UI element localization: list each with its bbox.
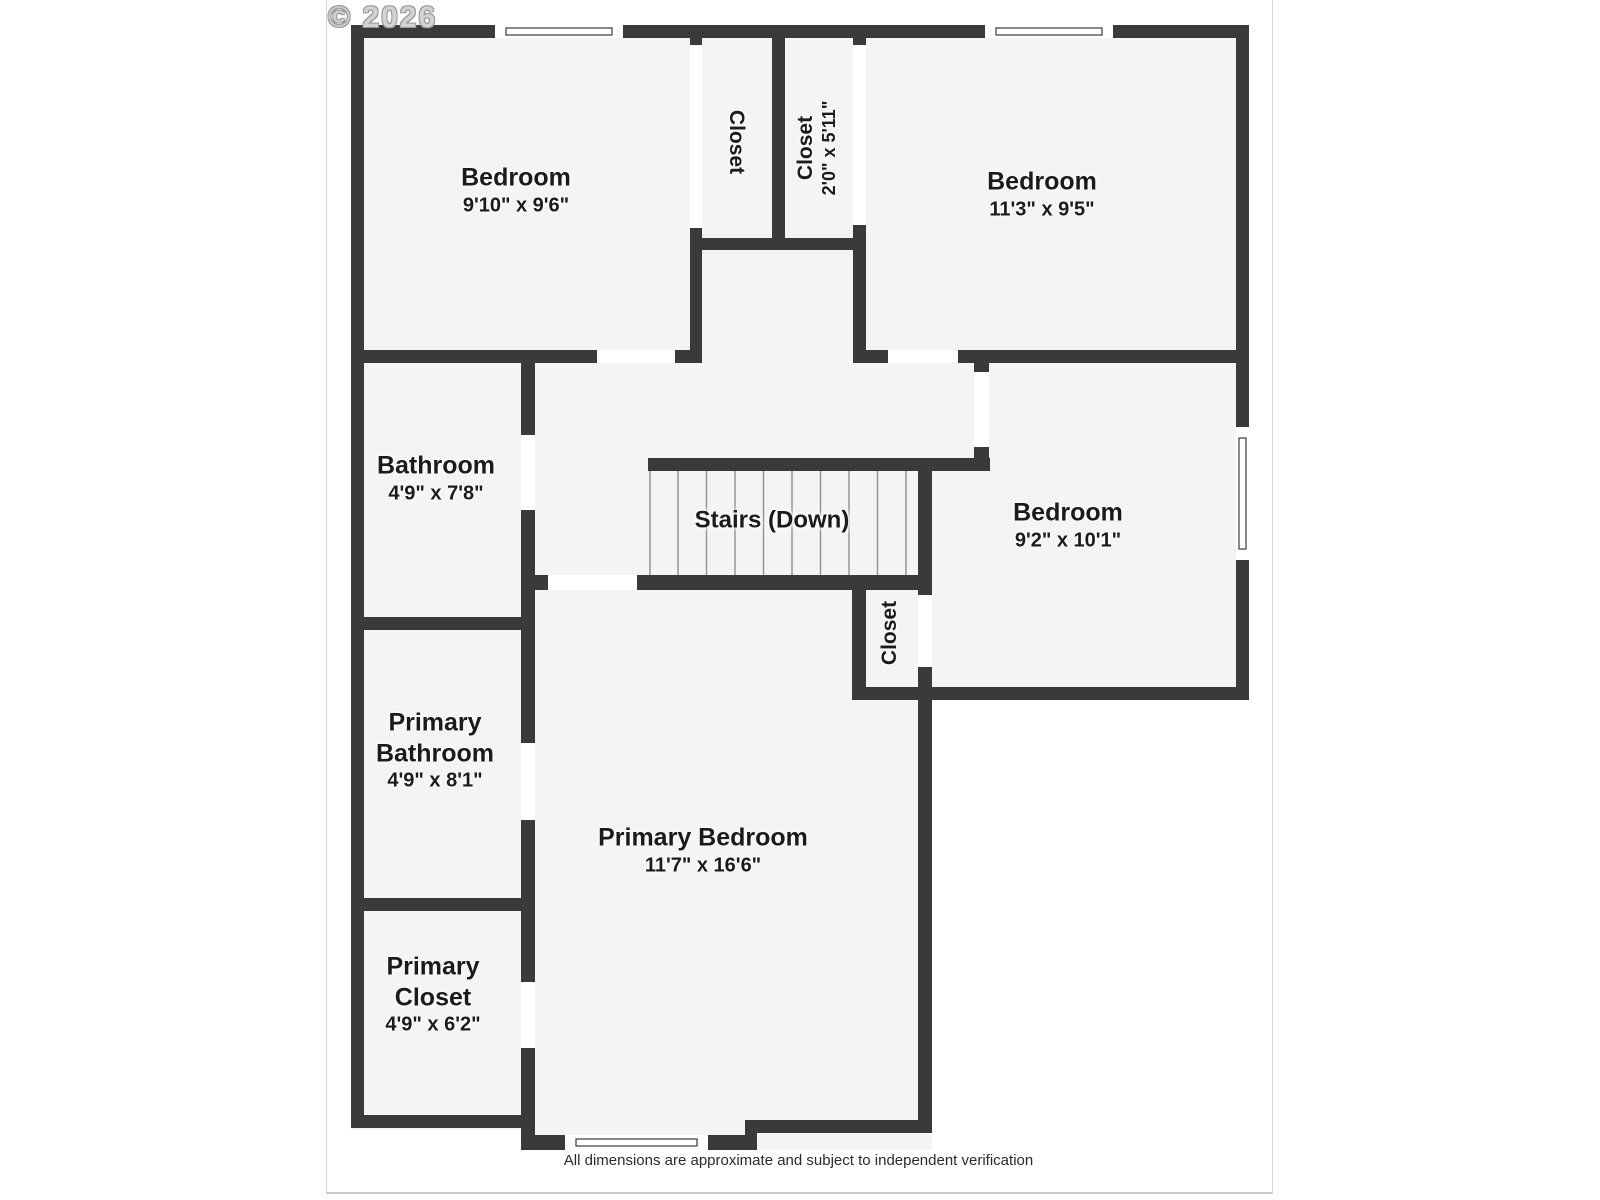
room-name: Closet <box>877 601 903 665</box>
room-label-bedroom-right: Bedroom 9'2" x 10'1" <box>1013 498 1123 553</box>
door-bedroom1 <box>597 350 675 363</box>
window-bedroom3 <box>1236 427 1249 560</box>
door-bedroom2 <box>888 350 958 363</box>
door-primary-bathroom <box>521 743 535 820</box>
room-label-primary-bedroom: Primary Bedroom 11'7" x 16'6" <box>598 823 808 878</box>
room-name: Bedroom <box>987 167 1097 198</box>
room-label-closet-stairs: Closet <box>877 601 903 665</box>
window-bedroom1 <box>495 25 623 38</box>
room-label-bedroom-top-left: Bedroom 9'10" x 9'6" <box>461 163 571 218</box>
wall-bedroom3-bottom <box>852 687 1249 700</box>
room-dims: 4'9" x 6'2" <box>362 1012 504 1036</box>
room-label-stairs: Stairs (Down) <box>695 505 850 534</box>
room-dims: 9'10" x 9'6" <box>461 193 571 217</box>
room-name: Primary Bathroom <box>364 707 506 768</box>
room-dims: 11'7" x 16'6" <box>598 853 808 877</box>
room-label-closet-2: Closet 2'0" x 5'11" <box>793 101 841 196</box>
room-label-primary-closet: Primary Closet 4'9" x 6'2" <box>362 951 504 1036</box>
door-closet3 <box>918 595 932 667</box>
room-dims: 2'0" x 5'11" <box>819 101 841 196</box>
wall-primary-closet-bottom <box>351 1115 535 1128</box>
room-dims: 4'9" x 7'8" <box>377 481 495 505</box>
room-label-primary-bathroom: Primary Bathroom 4'9" x 8'1" <box>364 707 506 792</box>
floor-center-column <box>521 363 932 1150</box>
room-name: Primary Bedroom <box>598 823 808 854</box>
disclaimer-text: All dimensions are approximate and subje… <box>326 1152 1271 1169</box>
room-name: Bathroom <box>377 451 495 482</box>
door-bedroom3 <box>974 372 989 447</box>
wall-bathroom-bottom <box>351 617 535 630</box>
wall-primary-bathroom-bottom <box>351 898 535 911</box>
wall-right-long-vertical <box>918 458 932 1133</box>
door-primary-closet <box>521 982 535 1048</box>
room-dims: 11'3" x 9'5" <box>987 197 1097 221</box>
copyright-watermark: © 2026 <box>328 1 437 35</box>
room-dims: 4'9" x 8'1" <box>364 768 506 792</box>
door-bathroom <box>521 435 535 510</box>
room-name: Stairs (Down) <box>695 505 850 534</box>
room-dims: 9'2" x 10'1" <box>1013 528 1123 552</box>
room-label-bathroom: Bathroom 4'9" x 7'8" <box>377 451 495 506</box>
room-label-bedroom-top-right: Bedroom 11'3" x 9'5" <box>987 167 1097 222</box>
floor-plan-page: Bedroom 9'10" x 9'6" Closet Closet 2'0" … <box>0 0 1600 1200</box>
window-primary-bedroom <box>565 1135 708 1150</box>
room-name: Primary Closet <box>362 951 504 1012</box>
door-closet1 <box>690 45 702 228</box>
room-label-closet-1: Closet <box>723 110 749 174</box>
wall-primary-bedroom-bottom-right <box>745 1120 932 1133</box>
window-bedroom2 <box>985 25 1113 38</box>
wall-stairs-top <box>648 458 990 471</box>
wall-closet3-left <box>852 580 866 687</box>
room-name: Closet <box>723 110 749 174</box>
wall-closets-divider <box>772 38 785 250</box>
wall-outer-top <box>351 25 1249 38</box>
door-primary-bedroom <box>548 575 637 590</box>
room-name: Closet <box>793 101 819 196</box>
room-name: Bedroom <box>461 163 571 194</box>
door-closet2 <box>853 45 866 225</box>
room-name: Bedroom <box>1013 498 1123 529</box>
